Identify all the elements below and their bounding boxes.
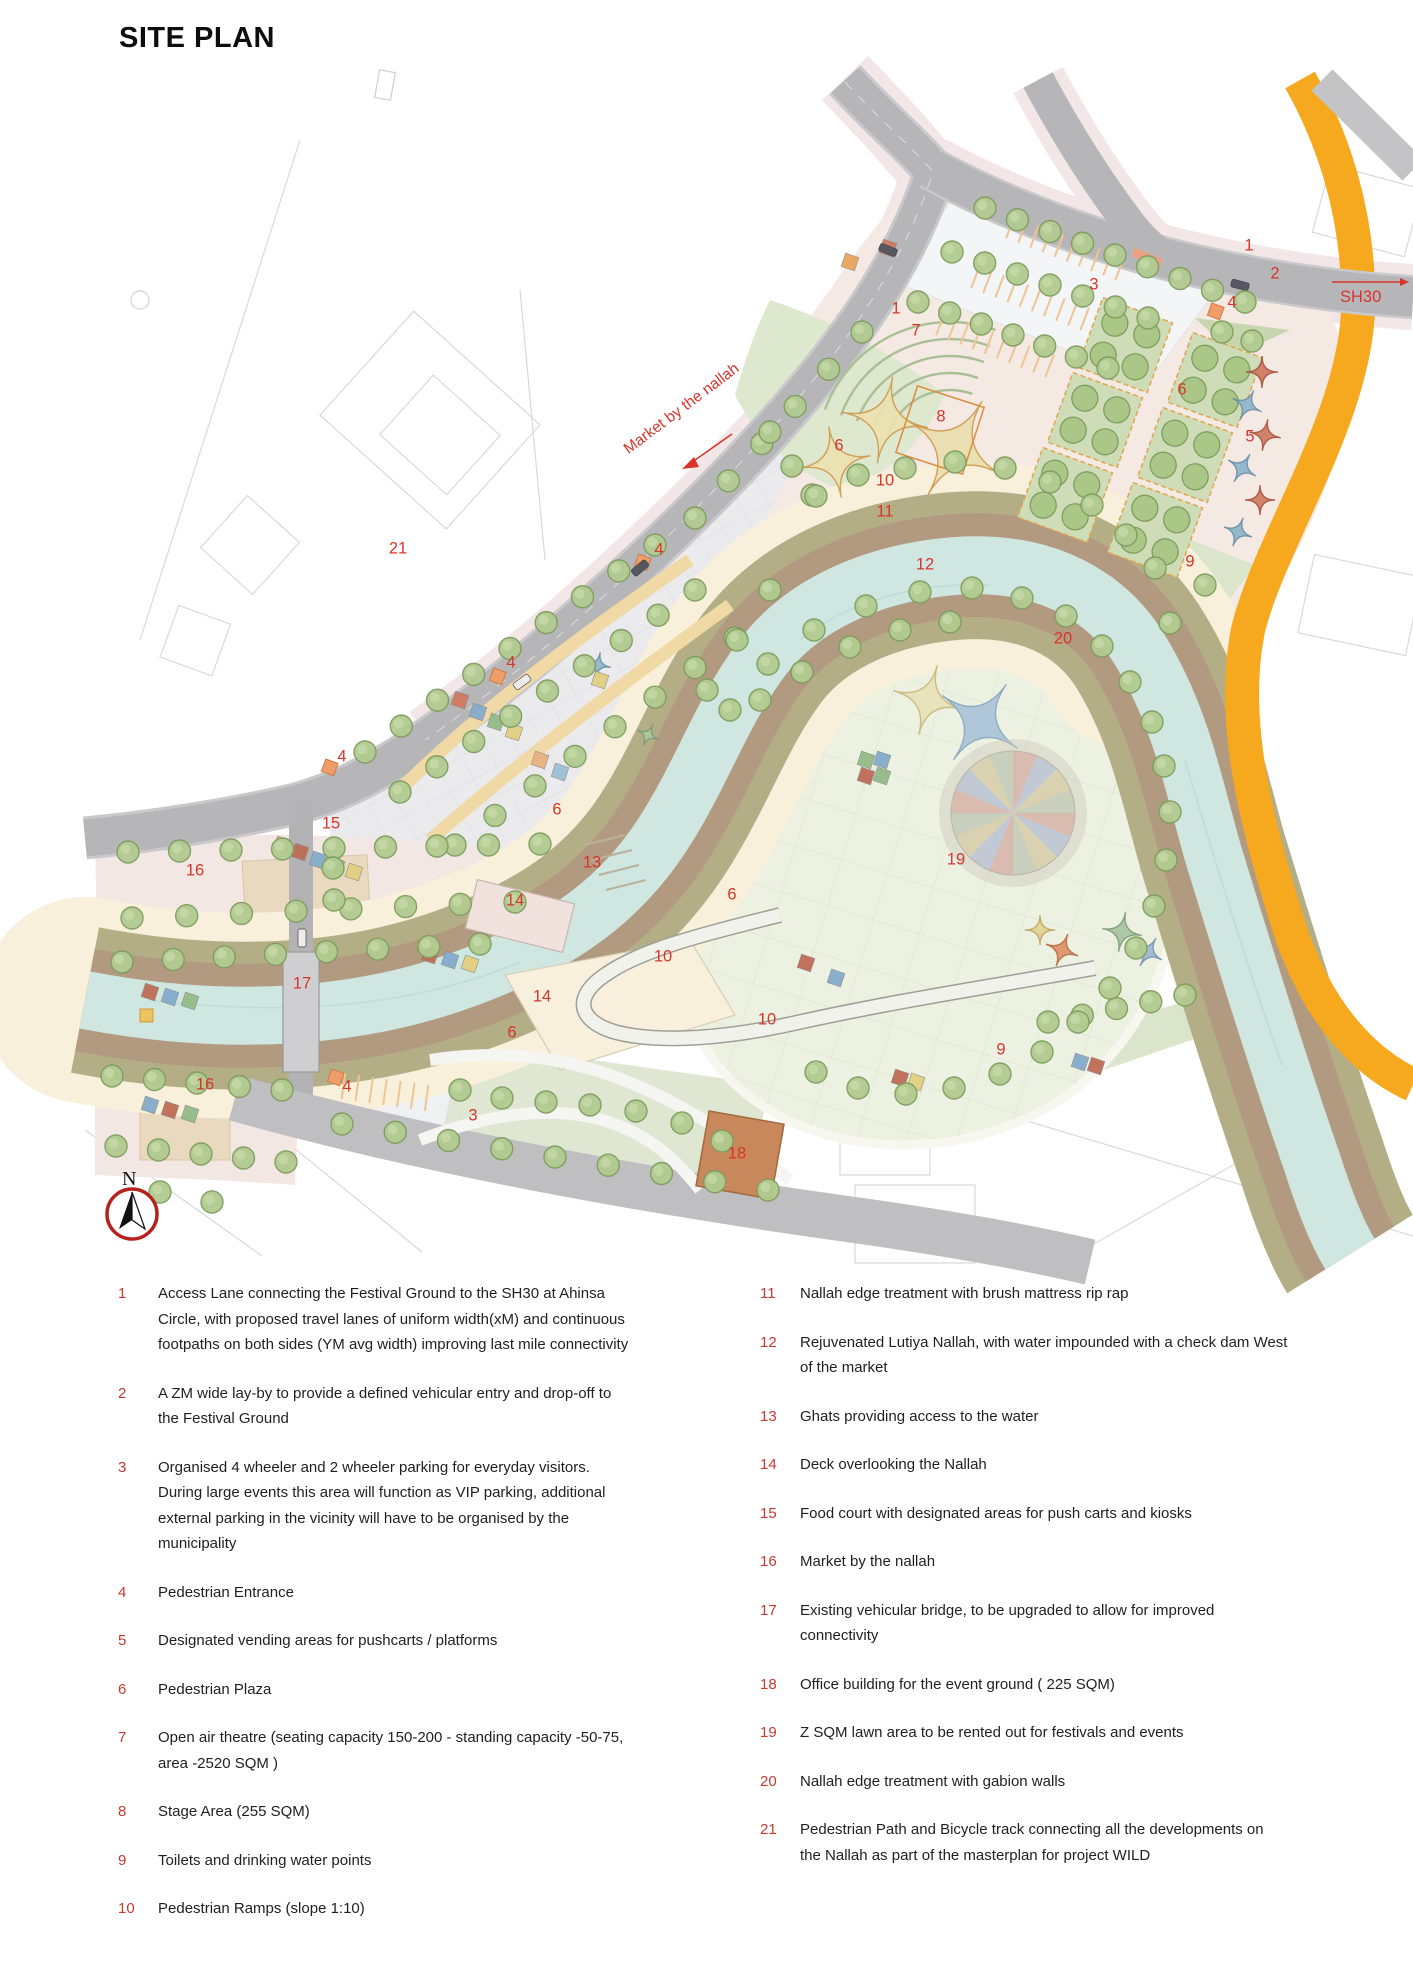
legend-item-14: 14Deck overlooking the Nallah — [760, 1452, 1288, 1478]
legend-number: 12 — [760, 1330, 800, 1381]
map-marker-6: 6 — [552, 801, 561, 820]
map-marker-6: 6 — [727, 886, 736, 905]
legend-item-20: 20Nallah edge treatment with gabion wall… — [760, 1769, 1288, 1795]
map-marker-15: 15 — [322, 815, 340, 834]
map-marker-4: 4 — [654, 541, 663, 560]
legend-text: Toilets and drinking water points — [158, 1848, 630, 1874]
map-marker-19: 19 — [947, 851, 965, 870]
map-marker-18: 18 — [728, 1145, 746, 1164]
legend-text: Market by the nallah — [800, 1549, 1288, 1575]
north-arrow — [107, 1189, 157, 1239]
map-marker-6: 6 — [834, 437, 843, 456]
legend-text: Access Lane connecting the Festival Grou… — [158, 1281, 630, 1358]
legend-item-19: 19Z SQM lawn area to be rented out for f… — [760, 1720, 1288, 1746]
legend-number: 20 — [760, 1769, 800, 1795]
legend-text: Open air theatre (seating capacity 150-2… — [158, 1725, 630, 1776]
legend-item-17: 17Existing vehicular bridge, to be upgra… — [760, 1598, 1288, 1649]
legend-text: Stage Area (255 SQM) — [158, 1799, 630, 1825]
legend-item-6: 6Pedestrian Plaza — [118, 1677, 630, 1703]
page-title: SITE PLAN — [119, 22, 275, 55]
map-marker-20: 20 — [1054, 630, 1072, 649]
legend-number: 9 — [118, 1848, 158, 1874]
legend-number: 7 — [118, 1725, 158, 1776]
legend-number: 4 — [118, 1580, 158, 1606]
legend-item-15: 15Food court with designated areas for p… — [760, 1501, 1288, 1527]
map-marker-3: 3 — [468, 1107, 477, 1126]
legend-item-12: 12Rejuvenated Lutiya Nallah, with water … — [760, 1330, 1288, 1381]
legend-text: Existing vehicular bridge, to be upgrade… — [800, 1598, 1288, 1649]
map-marker-21: 21 — [389, 540, 407, 559]
map-marker-16: 16 — [196, 1076, 214, 1095]
legend-item-5: 5Designated vending areas for pushcarts … — [118, 1628, 630, 1654]
map-marker-10: 10 — [876, 472, 894, 491]
legend-number: 8 — [118, 1799, 158, 1825]
legend-number: 13 — [760, 1404, 800, 1430]
legend-number: 11 — [760, 1281, 800, 1307]
legend-text: Nallah edge treatment with gabion walls — [800, 1769, 1288, 1795]
map-marker-14: 14 — [506, 892, 524, 911]
legend-number: 21 — [760, 1817, 800, 1868]
legend-item-13: 13Ghats providing access to the water — [760, 1404, 1288, 1430]
legend-text: Z SQM lawn area to be rented out for fes… — [800, 1720, 1288, 1746]
legend-right-column: 11Nallah edge treatment with brush mattr… — [760, 1281, 1288, 1891]
legend-text: Pedestrian Plaza — [158, 1677, 630, 1703]
bridge — [283, 952, 319, 1072]
map-marker-4: 4 — [506, 654, 515, 673]
legend-item-7: 7Open air theatre (seating capacity 150-… — [118, 1725, 630, 1776]
map-marker-8: 8 — [936, 408, 945, 427]
map-marker-5: 5 — [1245, 428, 1254, 447]
legend-item-18: 18Office building for the event ground (… — [760, 1672, 1288, 1698]
map-marker-17: 17 — [293, 975, 311, 994]
legend-number: 18 — [760, 1672, 800, 1698]
map-marker-7: 7 — [911, 322, 920, 341]
legend-text: A ZM wide lay-by to provide a defined ve… — [158, 1381, 630, 1432]
north-label: N — [122, 1168, 136, 1191]
map-marker-12: 12 — [916, 556, 934, 575]
legend-item-8: 8Stage Area (255 SQM) — [118, 1799, 630, 1825]
map-marker-6: 6 — [507, 1024, 516, 1043]
legend-text: Ghats providing access to the water — [800, 1404, 1288, 1430]
legend-number: 1 — [118, 1281, 158, 1358]
map-marker-4: 4 — [342, 1078, 351, 1097]
legend-item-3: 3Organised 4 wheeler and 2 wheeler parki… — [118, 1455, 630, 1557]
legend-number: 2 — [118, 1381, 158, 1432]
map-marker-9: 9 — [1185, 553, 1194, 572]
map-marker-6: 6 — [1177, 381, 1186, 400]
legend-number: 3 — [118, 1455, 158, 1557]
map-marker-16: 16 — [186, 862, 204, 881]
legend-text: Organised 4 wheeler and 2 wheeler parkin… — [158, 1455, 630, 1557]
legend-number: 15 — [760, 1501, 800, 1527]
legend-text: Nallah edge treatment with brush mattres… — [800, 1281, 1288, 1307]
legend-item-4: 4Pedestrian Entrance — [118, 1580, 630, 1606]
map-marker-10: 10 — [758, 1011, 776, 1030]
map-marker-1: 1 — [1244, 237, 1253, 256]
legend-item-2: 2A ZM wide lay-by to provide a defined v… — [118, 1381, 630, 1432]
legend-text: Office building for the event ground ( 2… — [800, 1672, 1288, 1698]
map-marker-4: 4 — [1227, 294, 1236, 313]
map-marker-4: 4 — [337, 748, 346, 767]
map-marker-1: 1 — [891, 300, 900, 319]
legend-item-9: 9Toilets and drinking water points — [118, 1848, 630, 1874]
legend-number: 19 — [760, 1720, 800, 1746]
legend-text: Pedestrian Ramps (slope 1:10) — [158, 1896, 630, 1922]
legend-item-16: 16Market by the nallah — [760, 1549, 1288, 1575]
legend-text: Pedestrian Entrance — [158, 1580, 630, 1606]
site-plan-page: SITE PLAN SH30 Market by the nallah N 11… — [0, 0, 1413, 1980]
legend-text: Rejuvenated Lutiya Nallah, with water im… — [800, 1330, 1288, 1381]
legend-number: 6 — [118, 1677, 158, 1703]
legend-number: 14 — [760, 1452, 800, 1478]
map-marker-11: 11 — [876, 503, 893, 522]
legend-item-1: 1Access Lane connecting the Festival Gro… — [118, 1281, 630, 1358]
map-marker-13: 13 — [583, 854, 601, 873]
legend-item-21: 21Pedestrian Path and Bicycle track conn… — [760, 1817, 1288, 1868]
sh30-label: SH30 — [1340, 288, 1381, 307]
legend-number: 17 — [760, 1598, 800, 1649]
map-marker-3: 3 — [1089, 276, 1098, 295]
map-marker-9: 9 — [996, 1041, 1005, 1060]
legend-text: Pedestrian Path and Bicycle track connec… — [800, 1817, 1288, 1868]
legend-text: Food court with designated areas for pus… — [800, 1501, 1288, 1527]
legend-left-column: 1Access Lane connecting the Festival Gro… — [118, 1281, 630, 1945]
legend-item-10: 10Pedestrian Ramps (slope 1:10) — [118, 1896, 630, 1922]
legend-number: 5 — [118, 1628, 158, 1654]
map-marker-14: 14 — [533, 988, 551, 1007]
legend-item-11: 11Nallah edge treatment with brush mattr… — [760, 1281, 1288, 1307]
map-marker-10: 10 — [654, 948, 672, 967]
legend-text: Deck overlooking the Nallah — [800, 1452, 1288, 1478]
legend-text: Designated vending areas for pushcarts /… — [158, 1628, 630, 1654]
legend-number: 16 — [760, 1549, 800, 1575]
legend-number: 10 — [118, 1896, 158, 1922]
map-marker-2: 2 — [1270, 265, 1279, 284]
